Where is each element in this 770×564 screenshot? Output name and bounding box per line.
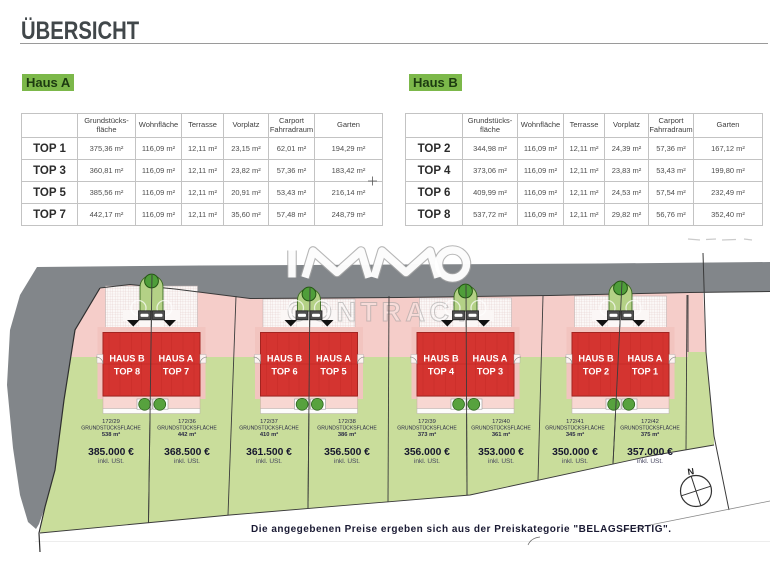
svg-text:172/37: 172/37 bbox=[260, 419, 278, 425]
svg-text:353.000 €: 353.000 € bbox=[478, 447, 524, 458]
svg-text:356.000 €: 356.000 € bbox=[404, 447, 450, 458]
svg-text:410 m²: 410 m² bbox=[260, 431, 278, 438]
svg-text:inkl. USt.: inkl. USt. bbox=[174, 458, 200, 465]
svg-text:TOP 2: TOP 2 bbox=[583, 367, 609, 377]
svg-text:172/38: 172/38 bbox=[338, 419, 356, 425]
svg-text:inkl. USt.: inkl. USt. bbox=[562, 458, 588, 465]
svg-text:N: N bbox=[687, 466, 695, 477]
svg-text:HAUS A: HAUS A bbox=[473, 354, 508, 364]
svg-text:HAUS B: HAUS B bbox=[267, 354, 303, 364]
svg-text:TOP 5: TOP 5 bbox=[320, 367, 346, 377]
svg-text:GRUNDSTÜCKSFLÄCHE: GRUNDSTÜCKSFLÄCHE bbox=[397, 425, 457, 432]
svg-text:HAUS B: HAUS B bbox=[578, 354, 614, 364]
svg-text:inkl. USt.: inkl. USt. bbox=[98, 458, 124, 465]
svg-text:GRUNDSTÜCKSFLÄCHE: GRUNDSTÜCKSFLÄCHE bbox=[545, 425, 605, 432]
svg-text:TOP 6: TOP 6 bbox=[271, 367, 297, 377]
svg-text:inkl. USt.: inkl. USt. bbox=[256, 458, 282, 465]
svg-text:TOP 4: TOP 4 bbox=[428, 367, 455, 377]
svg-text:HAUS B: HAUS B bbox=[423, 354, 459, 364]
svg-text:HAUS A: HAUS A bbox=[316, 354, 351, 364]
svg-text:TOP 8: TOP 8 bbox=[114, 367, 140, 377]
svg-text:inkl. USt.: inkl. USt. bbox=[488, 458, 514, 465]
svg-text:172/36: 172/36 bbox=[178, 419, 196, 425]
svg-text:TOP 7: TOP 7 bbox=[163, 367, 189, 377]
svg-text:inkl. USt.: inkl. USt. bbox=[637, 458, 663, 465]
svg-text:172/40: 172/40 bbox=[492, 419, 510, 425]
svg-text:HAUS A: HAUS A bbox=[159, 354, 194, 364]
svg-text:368.500 €: 368.500 € bbox=[164, 447, 210, 458]
svg-text:172/29: 172/29 bbox=[102, 419, 120, 425]
svg-text:HAUS A: HAUS A bbox=[628, 354, 663, 364]
svg-text:inkl. USt.: inkl. USt. bbox=[414, 458, 440, 465]
svg-text:356.500 €: 356.500 € bbox=[324, 447, 370, 458]
svg-text:442 m²: 442 m² bbox=[178, 431, 196, 438]
svg-text:361.500 €: 361.500 € bbox=[246, 447, 292, 458]
svg-text:TOP 1: TOP 1 bbox=[632, 367, 658, 377]
svg-text:357.000 €: 357.000 € bbox=[627, 447, 673, 458]
svg-text:386 m²: 386 m² bbox=[338, 431, 356, 438]
svg-text:GRUNDSTÜCKSFLÄCHE: GRUNDSTÜCKSFLÄCHE bbox=[239, 425, 299, 432]
svg-text:373 m²: 373 m² bbox=[418, 431, 436, 438]
svg-text:GRUNDSTÜCKSFLÄCHE: GRUNDSTÜCKSFLÄCHE bbox=[317, 425, 377, 432]
svg-text:GRUNDSTÜCKSFLÄCHE: GRUNDSTÜCKSFLÄCHE bbox=[157, 425, 217, 432]
svg-text:GRUNDSTÜCKSFLÄCHE: GRUNDSTÜCKSFLÄCHE bbox=[81, 425, 141, 432]
svg-text:GRUNDSTÜCKSFLÄCHE: GRUNDSTÜCKSFLÄCHE bbox=[620, 425, 680, 432]
svg-text:345 m²: 345 m² bbox=[566, 431, 584, 438]
svg-text:172/42: 172/42 bbox=[641, 419, 659, 425]
svg-text:385.000 €: 385.000 € bbox=[88, 447, 134, 458]
svg-text:HAUS B: HAUS B bbox=[109, 354, 145, 364]
svg-text:350.000 €: 350.000 € bbox=[552, 447, 598, 458]
svg-text:TOP 3: TOP 3 bbox=[477, 367, 503, 377]
svg-text:172/39: 172/39 bbox=[418, 419, 436, 425]
svg-text:172/41: 172/41 bbox=[566, 419, 584, 425]
svg-text:inkl. USt.: inkl. USt. bbox=[334, 458, 360, 465]
svg-text:361 m²: 361 m² bbox=[492, 431, 510, 438]
svg-text:375 m²: 375 m² bbox=[641, 431, 659, 438]
svg-text:538 m²: 538 m² bbox=[102, 431, 120, 438]
svg-text:GRUNDSTÜCKSFLÄCHE: GRUNDSTÜCKSFLÄCHE bbox=[471, 425, 531, 432]
